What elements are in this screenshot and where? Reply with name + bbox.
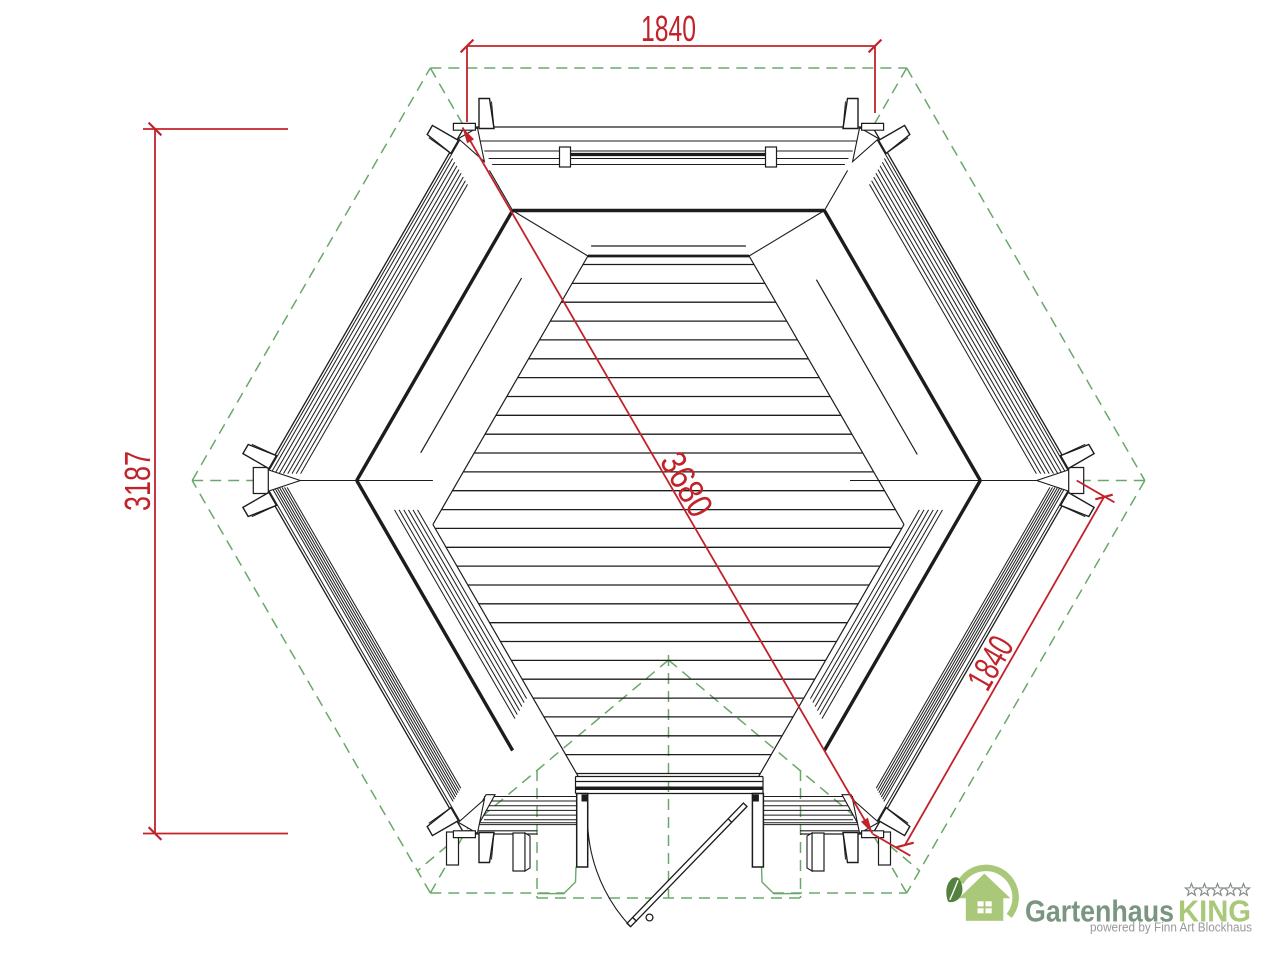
svg-text:powered by Finn Art Blockhaus: powered by Finn Art Blockhaus	[1090, 921, 1252, 935]
svg-text:1840: 1840	[641, 8, 696, 49]
svg-text:3187: 3187	[117, 451, 158, 511]
